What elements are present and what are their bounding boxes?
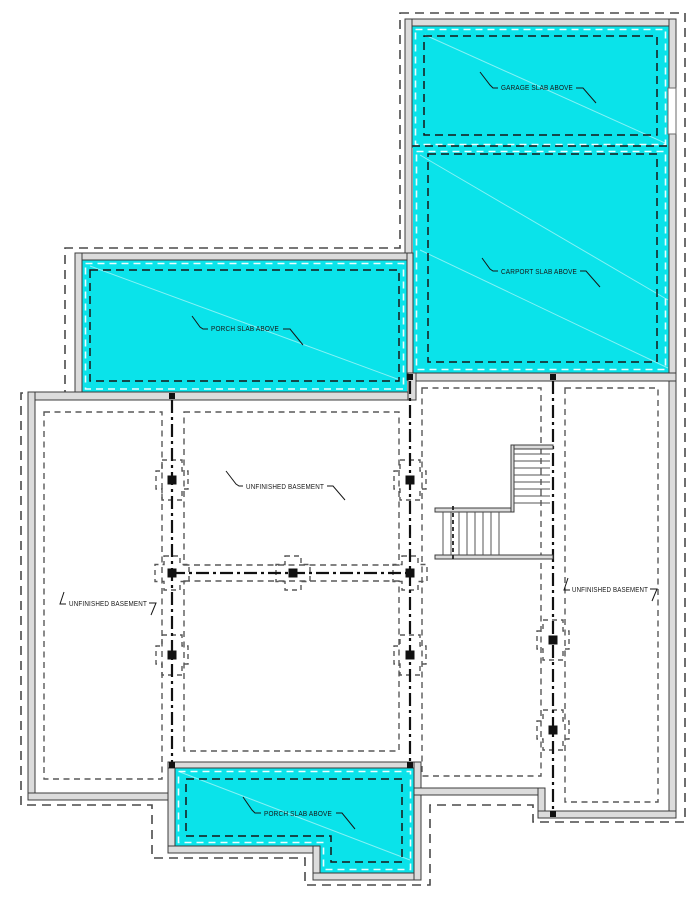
- label-unfinished-basement-left: UNFINISHED BASEMENT: [60, 592, 156, 615]
- wall-segment: [407, 253, 413, 380]
- column-marker: [549, 726, 558, 735]
- label-unfinished-basement-right: UNFINISHED BASEMENT: [564, 578, 657, 601]
- wall-segment: [75, 253, 413, 260]
- wall-segment: [414, 762, 421, 880]
- room-dash-left: [44, 412, 162, 779]
- basement-center-label: UNFINISHED BASEMENT: [246, 482, 324, 491]
- porch-bottom-slab-label: PORCH SLAB ABOVE: [264, 809, 332, 818]
- wall-segment: [410, 373, 676, 381]
- garage-slab-label: GARAGE SLAB ABOVE: [501, 83, 573, 92]
- wall-segment: [28, 392, 416, 400]
- carport-slab-label: CARPORT SLAB ABOVE: [501, 267, 577, 276]
- wall-segment: [168, 762, 175, 853]
- stair-wall: [511, 445, 553, 449]
- wall-segment: [168, 762, 421, 768]
- slab-regions: [82, 26, 669, 873]
- column-marker: [406, 651, 415, 660]
- pier-footings: [155, 460, 569, 750]
- leader-line: [650, 589, 657, 601]
- column-marker: [168, 651, 177, 660]
- column-marker: [407, 374, 413, 380]
- room-dash-far-right: [565, 388, 658, 802]
- floor-plan-canvas: GARAGE SLAB ABOVE CARPORT SLAB ABOVE POR…: [0, 0, 700, 907]
- wall-segment: [405, 19, 412, 260]
- column-marker: [406, 476, 415, 485]
- stair-treads-lower-flight: [443, 512, 499, 555]
- column-marker: [406, 569, 415, 578]
- basement-left-label: UNFINISHED BASEMENT: [69, 599, 147, 608]
- wall-segment: [313, 873, 421, 880]
- column-marker: [549, 636, 558, 645]
- leader-line: [327, 486, 345, 500]
- wall-segment: [405, 19, 676, 26]
- porch-left-slab-label: PORCH SLAB ABOVE: [211, 324, 279, 333]
- column-marker: [169, 762, 175, 768]
- room-dash-middle-bottom: [184, 581, 399, 751]
- stair-wall: [435, 508, 511, 512]
- column-marker: [168, 476, 177, 485]
- wall-segment: [28, 793, 175, 800]
- wall-segment: [168, 846, 320, 853]
- wall-segment: [75, 253, 82, 399]
- basement-right-label: UNFINISHED BASEMENT: [572, 585, 648, 594]
- floor-plan: GARAGE SLAB ABOVE CARPORT SLAB ABOVE POR…: [0, 0, 700, 907]
- label-unfinished-basement-center: UNFINISHED BASEMENT: [226, 471, 345, 500]
- column-marker: [289, 569, 298, 578]
- wall-segment: [669, 19, 676, 818]
- stair-treads-upper-flight: [514, 454, 550, 503]
- staircase: [435, 445, 553, 559]
- column-marker: [407, 762, 413, 768]
- leader-line: [60, 592, 66, 604]
- carport-slab-region: [413, 148, 669, 373]
- beam-lines: [172, 381, 553, 811]
- stair-wall: [511, 445, 514, 512]
- wall-segment: [538, 811, 676, 818]
- wall-segment: [28, 392, 35, 800]
- garage-wall-opening: [668, 88, 676, 134]
- basement-room-dashed-lines: [44, 388, 658, 802]
- column-marker: [169, 393, 175, 399]
- column-marker: [168, 569, 177, 578]
- wall-segment: [414, 788, 545, 795]
- leader-line: [149, 603, 156, 615]
- column-marker: [550, 374, 556, 380]
- leader-line: [226, 471, 243, 486]
- column-marker: [550, 811, 556, 817]
